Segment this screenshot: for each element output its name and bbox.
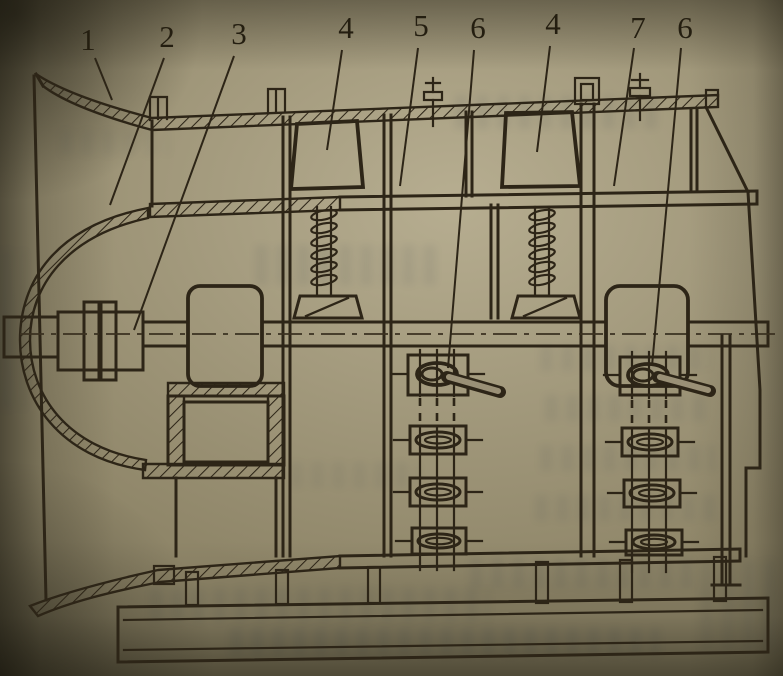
top-casing-band — [36, 74, 718, 130]
fan-sectional-diagram: 1 2 3 4 5 6 4 7 6 — [0, 0, 783, 676]
part-label-3: 3 — [231, 16, 247, 51]
blade-1 — [291, 121, 363, 189]
leader-line-6b — [652, 48, 681, 366]
damper-disc — [396, 528, 482, 554]
bracket-tab — [268, 89, 285, 113]
leader-line-7 — [614, 48, 634, 186]
part-labels: 1 2 3 4 5 6 4 7 6 — [80, 6, 693, 57]
coupling — [58, 302, 143, 380]
damper-disc — [608, 480, 696, 507]
leader-line-4a — [327, 50, 342, 150]
inlet-plane-line — [34, 76, 46, 600]
leader-line-2 — [110, 58, 164, 205]
base-skid — [118, 598, 768, 662]
damper-column-right — [604, 352, 710, 572]
part-label-4b: 4 — [545, 6, 561, 41]
right-outer-wall — [746, 192, 760, 556]
leader-line-1 — [95, 58, 112, 100]
part-label-2: 2 — [159, 19, 175, 54]
bolt — [630, 74, 650, 120]
part-label-6a: 6 — [470, 10, 486, 45]
part-label-4a: 4 — [338, 10, 354, 45]
damper-column-left — [392, 350, 500, 570]
diffuser-wall — [706, 107, 748, 192]
part-label-1: 1 — [80, 22, 96, 57]
part-label-5: 5 — [413, 8, 429, 43]
bearing-block-left — [188, 286, 262, 386]
part-label-6b: 6 — [677, 10, 693, 45]
adjusting-screw-2 — [512, 207, 580, 318]
book-page-photo: 1 2 3 4 5 6 4 7 6 — [0, 0, 783, 676]
leader-line-4b — [537, 46, 550, 152]
part-label-7: 7 — [630, 10, 646, 45]
handle-unit — [392, 355, 500, 395]
adjusting-screw-1 — [294, 207, 362, 318]
handle-unit — [604, 357, 710, 395]
support-pedestal — [143, 383, 284, 584]
